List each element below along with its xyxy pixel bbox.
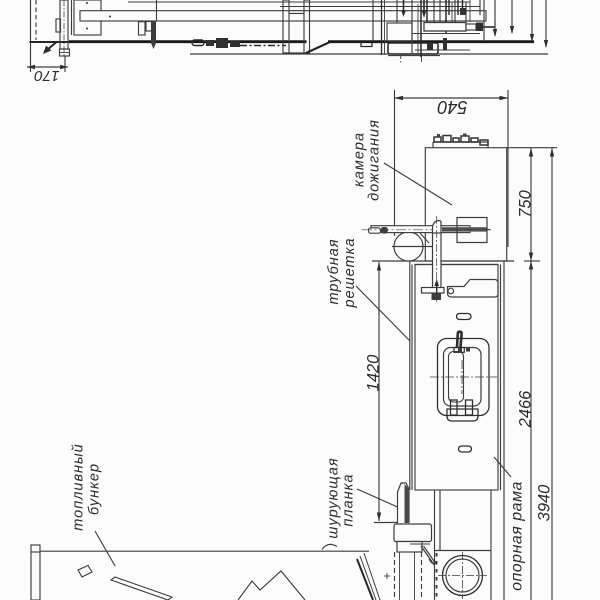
svg-text:750: 750 — [517, 189, 535, 217]
svg-text:опорная рама: опорная рама — [509, 481, 526, 591]
svg-text:3940: 3940 — [536, 484, 554, 522]
svg-text:планка: планка — [341, 473, 357, 526]
svg-text:трубная: трубная — [326, 238, 342, 304]
svg-text:2466: 2466 — [517, 390, 535, 429]
svg-text:170: 170 — [34, 67, 60, 84]
svg-text:решетка: решетка — [342, 237, 358, 308]
svg-text:бункер: бункер — [87, 463, 103, 515]
svg-text:540: 540 — [437, 97, 467, 117]
svg-text:1420: 1420 — [365, 354, 383, 392]
svg-text:камера: камера — [352, 132, 368, 187]
svg-text:топливный: топливный — [71, 443, 87, 530]
svg-text:дожигания: дожигания — [367, 119, 383, 201]
svg-text:шурующая: шурующая — [326, 457, 342, 538]
